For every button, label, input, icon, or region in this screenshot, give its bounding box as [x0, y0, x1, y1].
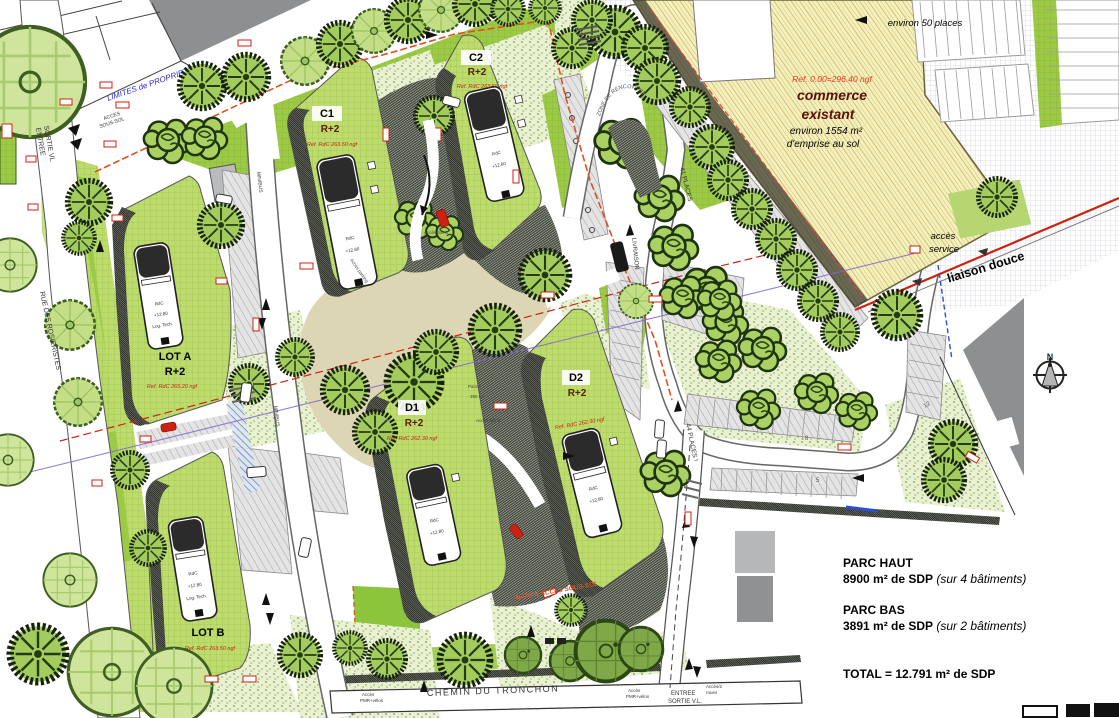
svg-text:LOT B: LOT B [192, 627, 225, 639]
svg-text:Accès bât C: Accès bât C [424, 230, 449, 235]
svg-text:ENTREE: ENTREE [671, 691, 695, 697]
svg-text:Ref. 0.00=296.40 ngf: Ref. 0.00=296.40 ngf [792, 74, 873, 84]
svg-text:PARC HAUT: PARC HAUT [843, 556, 913, 570]
svg-text:R+2: R+2 [405, 418, 424, 429]
svg-text:Ref. RdC 265.20 ngf: Ref. RdC 265.20 ngf [147, 384, 198, 390]
svg-text:R+2: R+2 [321, 124, 340, 135]
svg-text:commerce: commerce [797, 87, 867, 103]
svg-text:C2: C2 [469, 52, 483, 64]
svg-text:PARC BAS: PARC BAS [843, 603, 905, 617]
svg-text:d'emprise au sol: d'emprise au sol [787, 139, 860, 150]
svg-text:Accès/2: Accès/2 [706, 684, 723, 689]
svg-text:Ref. RdC 263.50 ngf: Ref. RdC 263.50 ngf [185, 646, 236, 652]
svg-text:Ref. RdC 262.30 ngf: Ref. RdC 262.30 ngf [387, 436, 438, 442]
svg-text:390 m²: 390 m² [470, 394, 485, 399]
svg-text:Accès: Accès [362, 692, 375, 697]
svg-text:environ 50 places: environ 50 places [888, 18, 963, 29]
svg-text:PMR+vélos: PMR+vélos [360, 698, 384, 703]
svg-text:3891 m² de SDP (sur 2 bâtiment: 3891 m² de SDP (sur 2 bâtiments) [843, 619, 1026, 633]
svg-text:D1: D1 [405, 402, 419, 414]
svg-text:8900 m² de SDP (sur 4 bâtiment: 8900 m² de SDP (sur 4 bâtiments) [843, 572, 1026, 586]
svg-text:Ref. RdC 263.50 ngf: Ref. RdC 263.50 ngf [457, 84, 508, 90]
svg-text:D2: D2 [569, 372, 583, 384]
svg-text:roues: roues [706, 690, 718, 695]
svg-text:R+2: R+2 [165, 366, 186, 378]
svg-text:PMR+vélos: PMR+vélos [626, 694, 650, 699]
svg-text:R+2: R+2 [468, 67, 487, 78]
svg-text:Parvis: Parvis [468, 384, 481, 389]
svg-text:service: service [929, 244, 959, 255]
svg-text:existant: existant [802, 106, 856, 122]
svg-text:accès: accès [931, 231, 956, 242]
svg-text:C1: C1 [320, 108, 334, 120]
svg-text:environ 1554 m²: environ 1554 m² [790, 126, 863, 137]
svg-text:SORTIE V.L.: SORTIE V.L. [668, 699, 702, 705]
svg-text:TOTAL = 12.791 m² de SDP: TOTAL = 12.791 m² de SDP [843, 667, 995, 681]
svg-text:LOT A: LOT A [159, 351, 192, 363]
svg-text:Accès: Accès [628, 688, 641, 693]
svg-text:Accès bât D: Accès bât D [476, 418, 501, 423]
svg-text:R+2: R+2 [568, 388, 587, 399]
svg-text:Ref. RdC 263.50 ngf: Ref. RdC 263.50 ngf [307, 142, 358, 148]
